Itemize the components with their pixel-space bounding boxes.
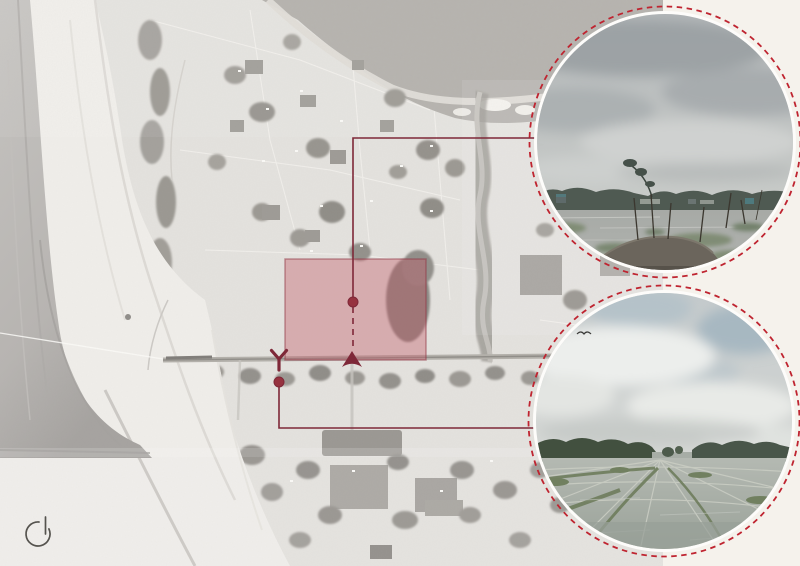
callout-dot-bottom: [274, 377, 284, 387]
site-boundary-overlay: [285, 259, 426, 360]
callout-dot-top: [348, 297, 358, 307]
site-analysis-board: [0, 0, 800, 566]
